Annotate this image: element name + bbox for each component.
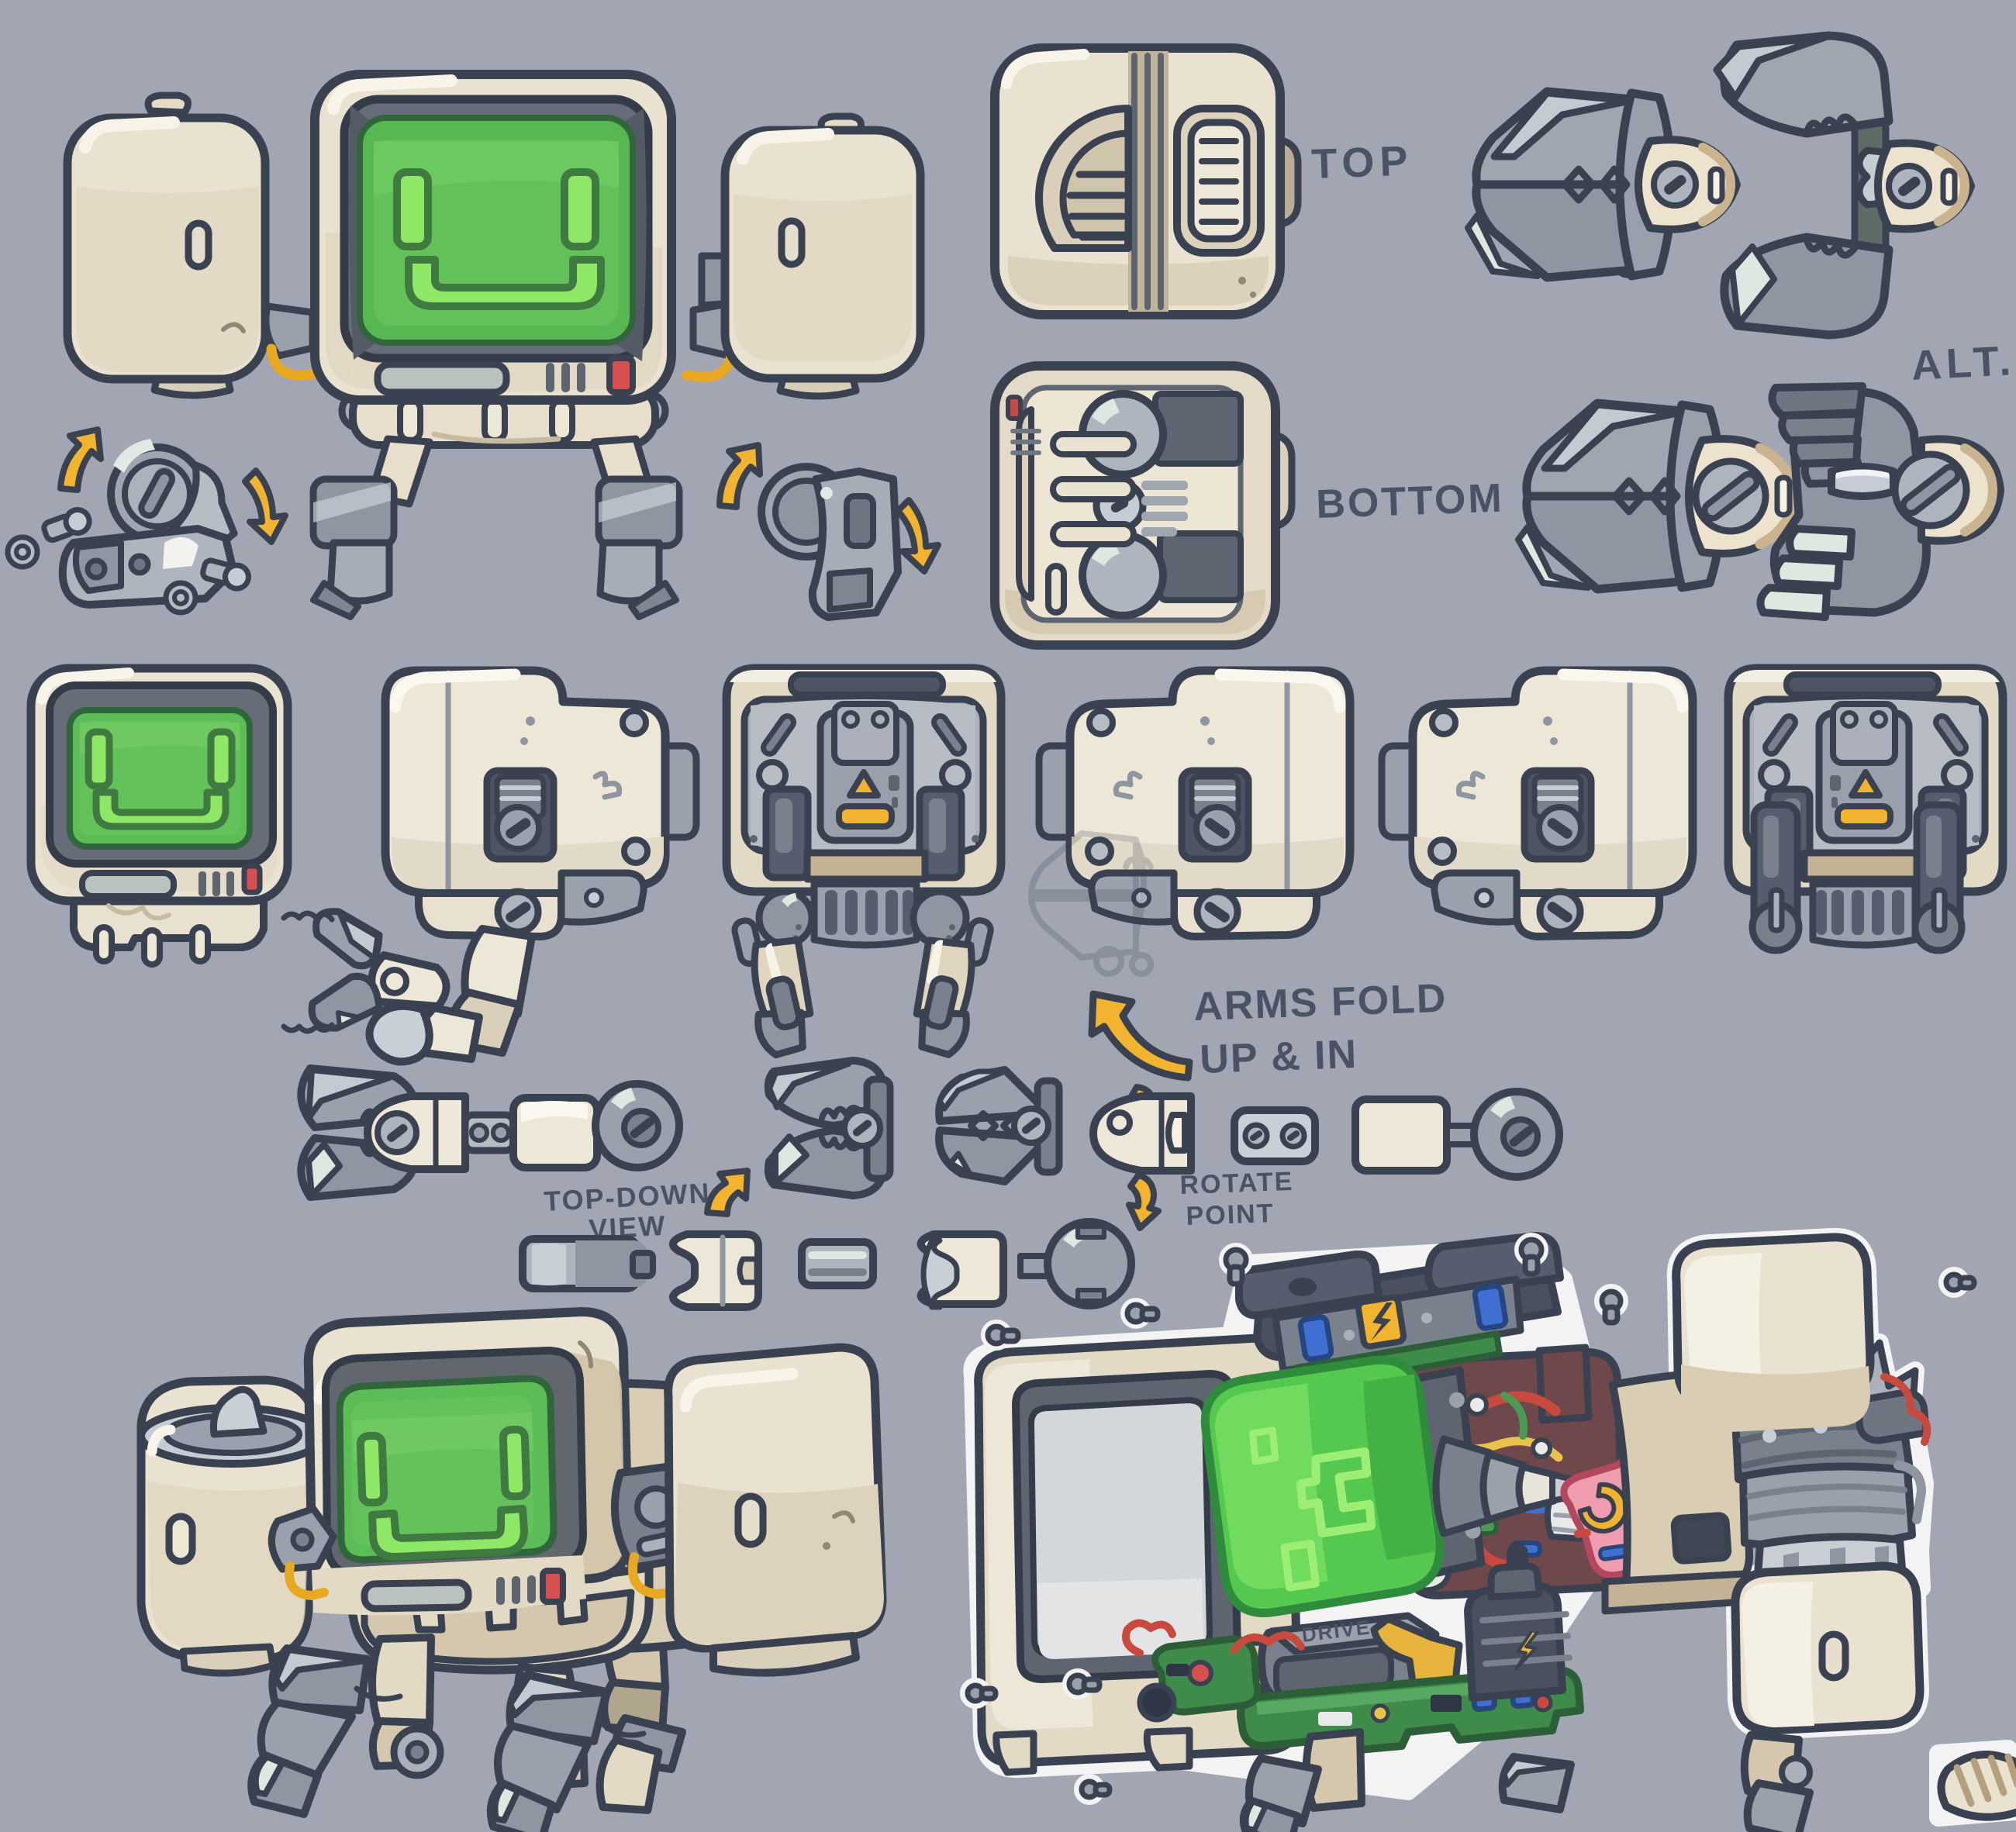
svg-text:BOTTOM: BOTTOM bbox=[1315, 476, 1504, 527]
svg-text:UP & IN: UP & IN bbox=[1199, 1032, 1358, 1082]
svg-text:ROTATE: ROTATE bbox=[1179, 1167, 1294, 1200]
svg-text:POINT: POINT bbox=[1186, 1199, 1275, 1231]
svg-text:TOP: TOP bbox=[1310, 137, 1414, 188]
svg-text:ALT.: ALT. bbox=[1910, 337, 2016, 389]
svg-text:ARMS FOLD: ARMS FOLD bbox=[1193, 976, 1448, 1030]
